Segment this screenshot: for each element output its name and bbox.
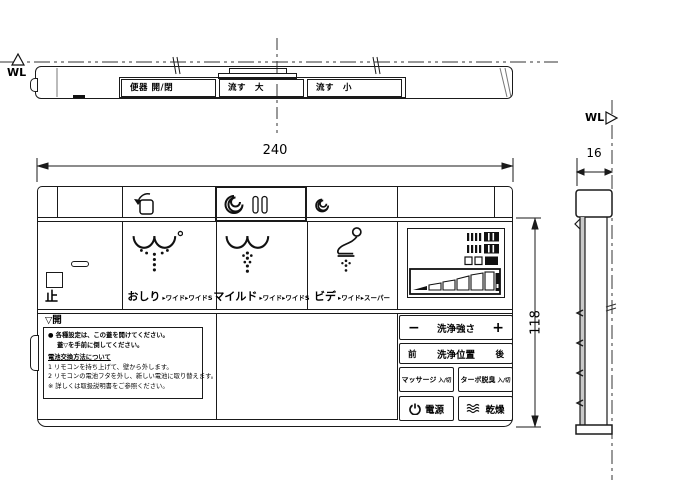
width-dimension-lines xyxy=(37,158,513,182)
power-icon xyxy=(409,403,421,415)
lid-vline-right xyxy=(397,313,398,419)
technical-drawing-canvas: WL 便器 開/閉 流す 大 流す 小 240 118 xyxy=(0,0,687,502)
stop-slot-shape xyxy=(71,261,89,267)
row-bottom-line-1 xyxy=(38,309,512,310)
notice-footnote: ※ 詳しくは取扱説明書をご参照ください。 xyxy=(48,382,198,392)
row-vline-d xyxy=(397,221,398,309)
oshiri-modes: ▸ワイド▸ワイドS xyxy=(162,292,212,302)
wall-mount-tab-top xyxy=(30,78,38,92)
row-vline-a xyxy=(122,221,123,309)
dry-button: 乾燥 xyxy=(458,396,513,421)
wl-label-side: WL xyxy=(585,111,607,124)
strength-label: 洗浄強さ xyxy=(437,321,475,335)
lid-bottom-line xyxy=(38,419,398,420)
dry-icon xyxy=(466,403,481,414)
turbo-label: ターボ脱臭 xyxy=(460,375,495,385)
massage-button: マッサージ 入/切 xyxy=(399,367,454,392)
strength-minus-label: − xyxy=(408,320,420,336)
wl-datum-up-icon xyxy=(12,54,24,65)
notice-line-1: ● 各種設定は、この蓋を開けてください。 xyxy=(48,331,198,341)
turbo-deodorizer-button: ターボ脱臭 入/切 xyxy=(458,367,513,392)
position-front-label: 前 xyxy=(408,348,417,360)
lid-vline-left xyxy=(216,313,217,419)
notice-heading: 電池交換方法について xyxy=(48,353,198,363)
oshiri-label: おしり xyxy=(127,288,160,304)
massage-state-label: 入/切 xyxy=(438,376,451,384)
side-view-profile xyxy=(575,190,616,434)
row-bottom-line-2 xyxy=(38,313,512,314)
mild-label: マイルド xyxy=(213,288,257,304)
strength-button: − 洗浄強さ + xyxy=(399,315,513,340)
bidet-button-label-row: ビデ ▸ワイド▸スーパー xyxy=(308,288,396,304)
mild-button-label-row: マイルド ▸ワイド▸ワイドS xyxy=(217,288,306,304)
button-flush-small: 流す 小 xyxy=(307,79,402,97)
position-button: 前 洗浄位置 後 xyxy=(399,343,513,364)
notice-step-1: 1 リモコンを持ち上げて、壁から外します。 xyxy=(48,363,198,373)
notice-line-2: 蓋▽を手前に倒してください。 xyxy=(48,341,198,351)
power-button: 電源 xyxy=(399,396,454,421)
turbo-state-label: 入/切 xyxy=(497,376,510,384)
battery-notice-box: ● 各種設定は、この蓋を開けてください。 蓋▽を手前に倒してください。 電池交換… xyxy=(43,327,203,399)
button-flush-large: 流す 大 xyxy=(219,79,304,97)
strength-plus-label: + xyxy=(492,320,504,336)
width-dimension-text: 240 xyxy=(255,143,295,158)
depth-dimension-text: 16 xyxy=(581,146,607,160)
bidet-modes: ▸ワイド▸スーパー xyxy=(338,292,390,302)
position-label: 洗浄位置 xyxy=(437,347,475,361)
lid-hinge-tab xyxy=(30,335,39,371)
height-dimension-text: 118 xyxy=(529,307,544,339)
stop-button-label: 止 xyxy=(45,286,58,305)
band-vline-e xyxy=(494,187,495,217)
dry-label: 乾燥 xyxy=(485,402,504,416)
power-label: 電源 xyxy=(425,402,444,416)
button-flush-large-label: 流す 大 xyxy=(228,83,264,93)
band-highlight-cell xyxy=(215,186,307,222)
button-toilet-open-close: 便器 開/閉 xyxy=(121,79,216,97)
depth-dimension-lines xyxy=(577,158,612,186)
wl-label-left: WL xyxy=(7,66,33,79)
position-back-label: 後 xyxy=(495,348,504,360)
lid-open-label: ▽開 xyxy=(45,312,62,326)
band-vline-d xyxy=(397,187,398,217)
lcd-display-frame xyxy=(407,228,505,298)
band-vline-b xyxy=(122,187,123,217)
button-flush-small-label: 流す 小 xyxy=(316,83,352,93)
massage-label: マッサージ xyxy=(402,375,437,385)
oshiri-button-label-row: おしり ▸ワイド▸ワイドS xyxy=(124,288,216,304)
band-vline-a xyxy=(57,187,58,217)
notice-step-2: 2 リモコンの電池フタを外し、新しい電池に取り替えます。 xyxy=(48,372,198,382)
mild-modes: ▸ワイド▸ワイドS xyxy=(259,292,309,302)
wl-datum-right-icon xyxy=(606,112,617,124)
bidet-label: ビデ xyxy=(314,288,336,304)
button-toilet-open-close-label: 便器 開/閉 xyxy=(130,83,173,93)
